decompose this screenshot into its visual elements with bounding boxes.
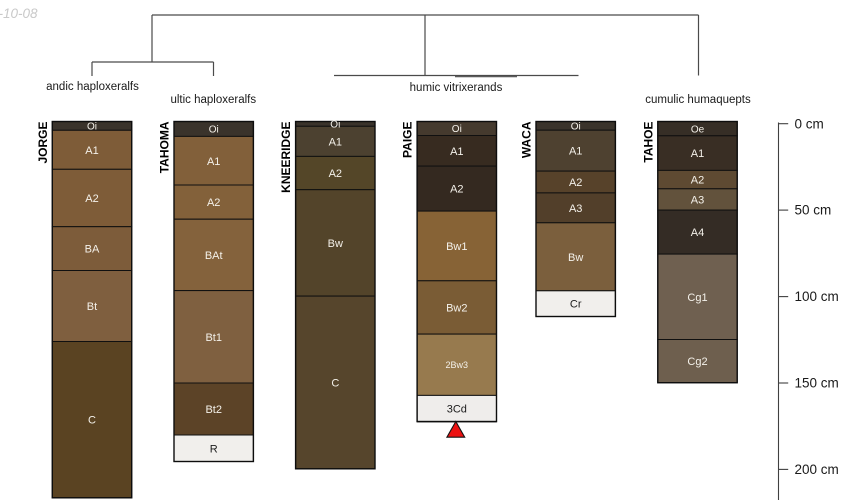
svg-text:Oi: Oi bbox=[452, 124, 462, 135]
svg-text:3Cd: 3Cd bbox=[447, 404, 467, 416]
svg-text:Bw: Bw bbox=[328, 238, 343, 250]
svg-text:ultic haploxeralfs: ultic haploxeralfs bbox=[170, 94, 256, 106]
svg-text:Oi: Oi bbox=[330, 120, 340, 131]
svg-text:A1: A1 bbox=[691, 148, 704, 160]
svg-text:PAIGE: PAIGE bbox=[401, 122, 415, 158]
svg-text:Oi: Oi bbox=[209, 125, 219, 136]
svg-text:200 cm: 200 cm bbox=[795, 462, 839, 477]
svg-text:Bw2: Bw2 bbox=[446, 303, 467, 315]
svg-text:Bt1: Bt1 bbox=[205, 332, 222, 344]
svg-text:andic haploxeralfs: andic haploxeralfs bbox=[46, 81, 139, 93]
svg-text:A2: A2 bbox=[569, 177, 582, 189]
svg-text:A1: A1 bbox=[569, 146, 582, 158]
svg-text:C: C bbox=[331, 378, 339, 390]
svg-text:WACA: WACA bbox=[520, 121, 534, 158]
svg-text:KNEERIDGE: KNEERIDGE bbox=[279, 122, 293, 193]
svg-text:0 cm: 0 cm bbox=[795, 116, 824, 131]
svg-text:A1: A1 bbox=[450, 146, 463, 158]
svg-text:C: C bbox=[88, 415, 96, 427]
svg-text:50 cm: 50 cm bbox=[795, 203, 832, 218]
svg-text:BA: BA bbox=[85, 244, 100, 256]
svg-text:cumulic humaquepts: cumulic humaquepts bbox=[645, 94, 751, 106]
svg-text:A3: A3 bbox=[569, 203, 582, 215]
svg-text:150 cm: 150 cm bbox=[795, 376, 839, 391]
svg-text:Bw1: Bw1 bbox=[446, 241, 467, 253]
svg-text:Bw: Bw bbox=[568, 252, 583, 264]
svg-text:BAt: BAt bbox=[205, 250, 223, 262]
svg-text:Bt: Bt bbox=[87, 301, 97, 313]
svg-text:A2: A2 bbox=[329, 168, 342, 180]
svg-text:Oi: Oi bbox=[87, 122, 97, 133]
svg-text:TAHOE: TAHOE bbox=[641, 122, 655, 163]
svg-text:100 cm: 100 cm bbox=[795, 289, 839, 304]
svg-text:Oi: Oi bbox=[571, 122, 581, 133]
svg-text:Cg1: Cg1 bbox=[687, 292, 707, 304]
svg-text:A2: A2 bbox=[207, 197, 220, 209]
svg-text:humic vitrixerands: humic vitrixerands bbox=[410, 82, 503, 94]
svg-text:A2: A2 bbox=[450, 184, 463, 196]
svg-text:Bt2: Bt2 bbox=[205, 404, 222, 416]
svg-text:A1: A1 bbox=[85, 145, 98, 157]
svg-text:TAHOMA: TAHOMA bbox=[158, 121, 172, 173]
svg-text:2Bw3: 2Bw3 bbox=[446, 360, 469, 370]
svg-text:Cg2: Cg2 bbox=[687, 356, 707, 368]
svg-text:JORGE: JORGE bbox=[36, 122, 50, 164]
svg-text:A1: A1 bbox=[207, 156, 220, 168]
svg-text:A4: A4 bbox=[691, 227, 704, 239]
svg-text:A1: A1 bbox=[329, 136, 342, 148]
svg-text:A2: A2 bbox=[85, 193, 98, 205]
svg-text:Cr: Cr bbox=[570, 299, 582, 311]
svg-text:Oe: Oe bbox=[691, 124, 705, 135]
svg-text:A2: A2 bbox=[691, 175, 704, 187]
svg-text:A3: A3 bbox=[691, 195, 704, 207]
svg-text:-10-08: -10-08 bbox=[0, 6, 38, 21]
svg-text:R: R bbox=[210, 443, 218, 455]
